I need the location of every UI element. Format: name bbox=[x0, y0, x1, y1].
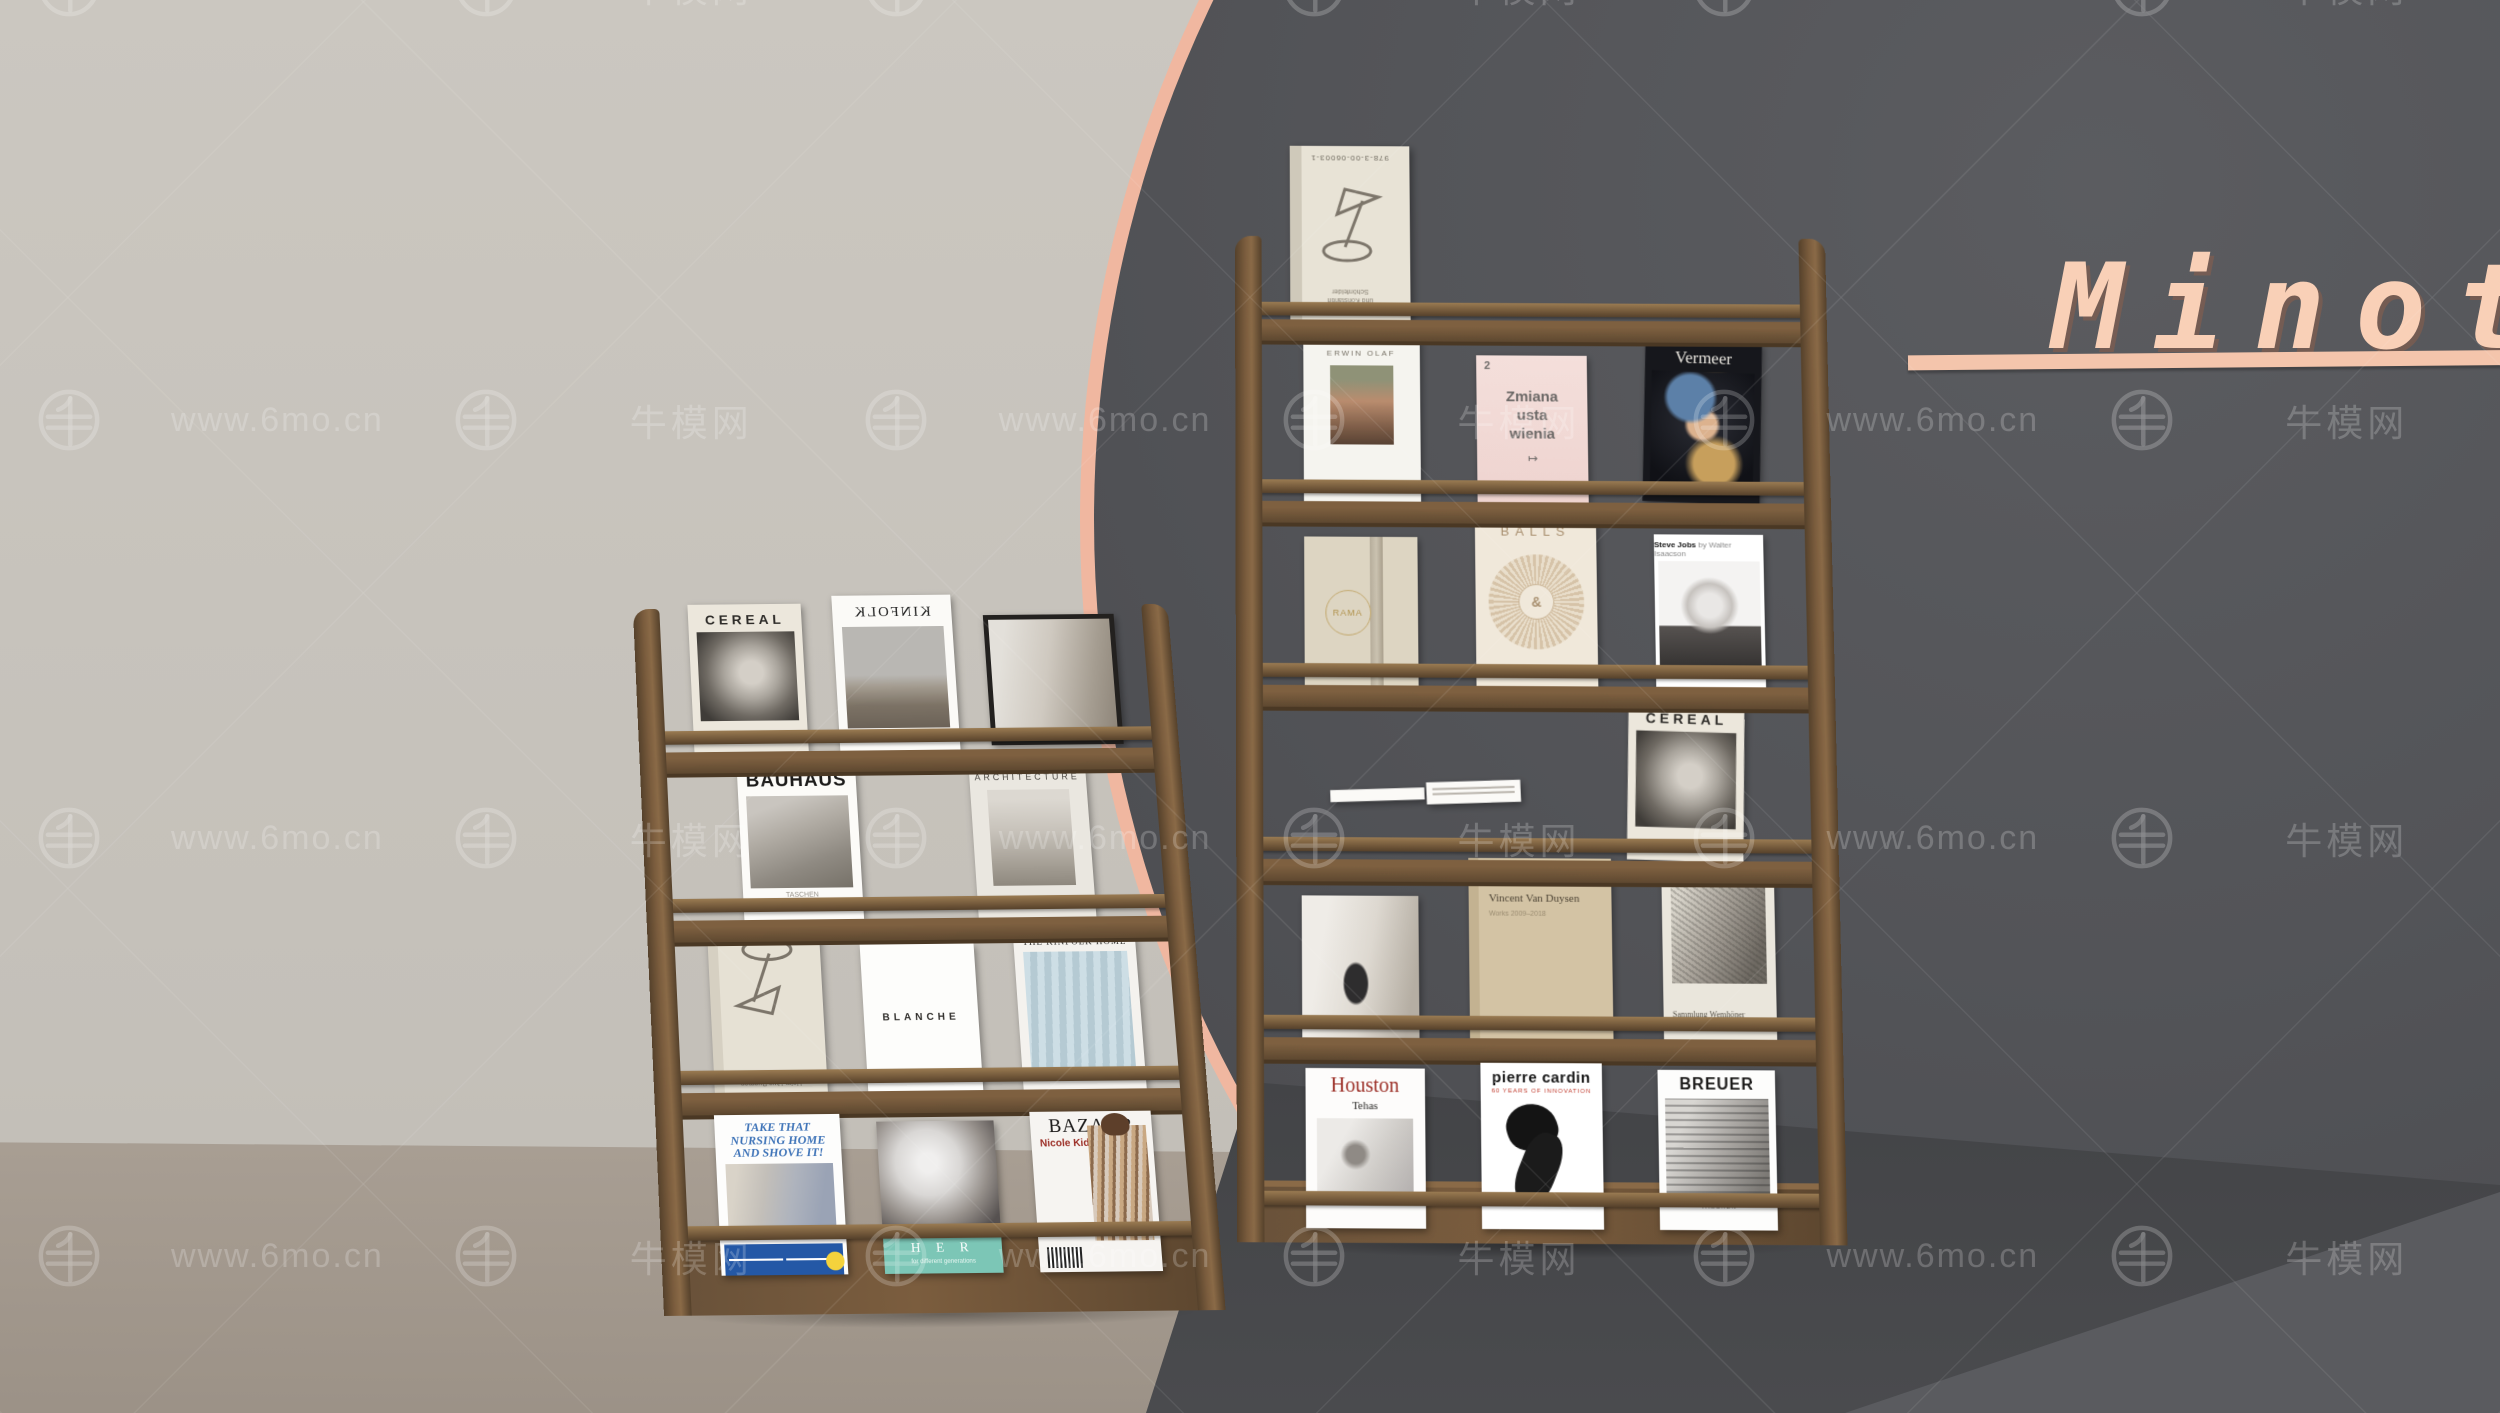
erwin-olaf-title: ERWIN OLAF bbox=[1327, 349, 1396, 358]
showroom-scene: Minotli CEREAL KINFOLK BAUHAUS bbox=[0, 0, 2500, 1413]
ampersand: & bbox=[1518, 584, 1554, 620]
niu-logo-icon bbox=[454, 388, 518, 452]
blanche-title: BLANCHE bbox=[882, 1011, 960, 1023]
vermeer-title: Vermeer bbox=[1675, 348, 1732, 370]
blue-curtain-photo bbox=[1023, 951, 1137, 1071]
shelf-board bbox=[1238, 501, 1828, 530]
isbn-text: 978-3-00-06003-1 bbox=[1310, 154, 1389, 163]
niu-logo-icon bbox=[864, 388, 928, 452]
left-shelf-row-2: BAUHAUS TASCHEN ARCHITECTURE bbox=[640, 772, 1193, 921]
kinfolk-title: KINFOLK bbox=[852, 604, 931, 621]
yellow-badge bbox=[826, 1252, 845, 1271]
book-geometric-diagram: Holm-Uwe Bugmen bbox=[707, 925, 828, 1093]
breuer-architecture-photo bbox=[1665, 1098, 1770, 1200]
steve-jobs-title: Steve Jobs by Walter Isaacson bbox=[1654, 540, 1764, 558]
shelf-board bbox=[1239, 859, 1836, 888]
book-upside-down-isbn: Holm-Uwe Bugmen und Konstantin Schönfeld… bbox=[1290, 146, 1411, 320]
magazine-her: H E R for different generations bbox=[876, 1120, 1004, 1274]
breuer-title: BREUER bbox=[1679, 1076, 1754, 1095]
left-shelf-row-4: TAKE THAT NURSING HOME AND SHOVE IT! H E… bbox=[655, 1114, 1222, 1276]
interior-photo bbox=[1336, 794, 1418, 796]
watermark-name: 牛模网 bbox=[589, 393, 794, 447]
etching-photo bbox=[1670, 883, 1767, 984]
van-duysen-subtitle: Works 2009–2018 bbox=[1489, 910, 1546, 917]
cereal-title: CEREAL bbox=[705, 611, 785, 627]
watermark-url: www.6mo.cn bbox=[171, 819, 384, 858]
cardin-title: pierre cardin bbox=[1492, 1069, 1591, 1087]
couple-cover-photo bbox=[841, 626, 950, 729]
cone-diagram-icon bbox=[728, 935, 802, 1020]
book-balls-glory: BALLS & GLORY bbox=[1475, 516, 1599, 687]
book-erwin-olaf: ERWIN OLAF bbox=[1303, 339, 1421, 502]
left-shelf-row-1: CEREAL KINFOLK bbox=[633, 604, 1179, 753]
issue-number: 2 bbox=[1484, 360, 1490, 372]
sunburst-graphic: & bbox=[1488, 554, 1585, 649]
her-title: H E R bbox=[910, 1239, 975, 1256]
right-shelf-row-4: CEREAL bbox=[1236, 710, 1839, 861]
shelf-board bbox=[1238, 319, 1824, 347]
shell-cover-photo bbox=[1635, 730, 1736, 829]
watermark-name: 牛模网 bbox=[589, 0, 794, 13]
right-shelf-row-3: RAMA BALLS & GLORY Steve Jobs by Walter … bbox=[1236, 526, 1835, 687]
niu-logo-icon bbox=[454, 0, 518, 18]
niu-logo-icon bbox=[454, 806, 518, 870]
bauhaus-cover-photo bbox=[746, 795, 853, 888]
zmiana-title: Zmiana usta wienia bbox=[1506, 389, 1559, 444]
left-shelf-row-3: Holm-Uwe Bugmen BLANCHE THE KINFOLK HOME bbox=[648, 941, 1207, 1093]
right-shelf-row-top: Holm-Uwe Bugmen und Konstantin Schönfeld… bbox=[1235, 236, 1827, 322]
jobs-portrait-photo bbox=[1659, 561, 1762, 679]
niu-logo-icon bbox=[37, 806, 101, 870]
arch-corridor-photo bbox=[987, 789, 1076, 885]
white-base-bar bbox=[989, 743, 1118, 745]
left-page bbox=[1330, 787, 1425, 802]
right-magazine-rack: Holm-Uwe Bugmen und Konstantin Schönfeld… bbox=[1235, 236, 1848, 1246]
arrow-glyph: ↦ bbox=[1528, 451, 1538, 465]
cone-diagram-icon bbox=[1315, 184, 1384, 265]
right-shelf-row-6: Houston Tehas pierre cardin 60 YEARS OF … bbox=[1237, 1064, 1848, 1231]
right-shelf-row-2: ERWIN OLAF 2 Zmiana usta wienia ↦ Vermee… bbox=[1235, 344, 1831, 503]
houston-subtitle: Tehas bbox=[1352, 1100, 1378, 1112]
niu-logo-icon bbox=[864, 0, 928, 18]
left-magazine-rack: CEREAL KINFOLK BAUHAUS TASCHEN ARCHITECT… bbox=[633, 604, 1226, 1316]
erwin-olaf-photo bbox=[1330, 365, 1394, 444]
houston-title: Houston bbox=[1331, 1074, 1400, 1098]
right-shelf-row-5: Vincent Van Duysen Works 2009–2018 Samml… bbox=[1236, 885, 1843, 1040]
framed-interior-picture bbox=[983, 614, 1124, 745]
portrait-photo bbox=[876, 1120, 1001, 1231]
van-duysen-title: Vincent Van Duysen bbox=[1489, 892, 1580, 905]
isbn-book-content: Holm-Uwe Bugmen und Konstantin Schönfeld… bbox=[1290, 146, 1411, 320]
rack-post-left bbox=[1235, 236, 1265, 1242]
book-take-that: TAKE THAT NURSING HOME AND SHOVE IT! bbox=[714, 1114, 848, 1276]
shelf-board bbox=[1239, 685, 1833, 714]
barcode bbox=[1047, 1247, 1083, 1268]
watermark-url: www.6mo.cn bbox=[171, 0, 384, 6]
interior-photo bbox=[1432, 796, 1514, 798]
shelf-rail bbox=[654, 894, 1185, 913]
shell-cover-photo bbox=[697, 631, 799, 721]
take-that-title: TAKE THAT NURSING HOME AND SHOVE IT! bbox=[730, 1120, 827, 1160]
pearl-earring-painting bbox=[1650, 370, 1755, 491]
magazine-bazaar: BAZAAR Nicole Kidman 175 bbox=[1029, 1111, 1163, 1273]
magazine-kinfolk-mirrored: KINFOLK bbox=[831, 595, 960, 751]
niu-logo-icon bbox=[37, 0, 101, 18]
cardin-subtitle: 60 YEARS OF INNOVATION bbox=[1491, 1088, 1591, 1095]
watermark-url: www.6mo.cn bbox=[999, 0, 1212, 6]
circular-emblem: RAMA bbox=[1325, 590, 1371, 636]
dresser-photo bbox=[988, 619, 1118, 741]
right-page bbox=[1426, 780, 1521, 805]
book-sammlung: Sammlung Wemhöner Jovis Verlag bbox=[1661, 877, 1777, 1040]
niu-logo-icon bbox=[37, 388, 101, 452]
her-subtitle: for different generations bbox=[911, 1258, 976, 1265]
watermark-url: www.6mo.cn bbox=[171, 401, 384, 440]
